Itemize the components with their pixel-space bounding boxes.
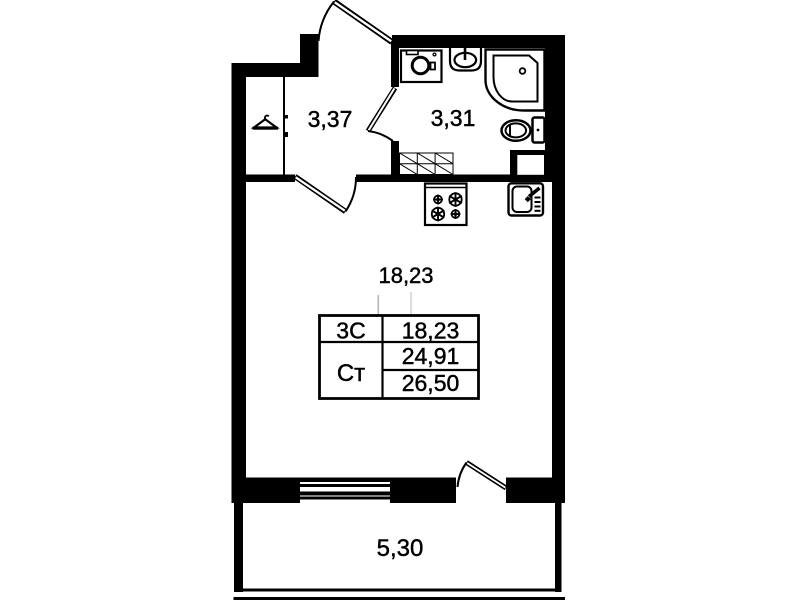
svg-text:3,37: 3,37 (308, 106, 353, 132)
svg-text:24,91: 24,91 (402, 343, 460, 369)
svg-text:Ст: Ст (337, 360, 365, 387)
svg-text:3,31: 3,31 (431, 105, 476, 131)
svg-text:18,23: 18,23 (402, 318, 460, 344)
svg-text:5,30: 5,30 (377, 535, 424, 562)
svg-text:26,50: 26,50 (402, 370, 460, 396)
svg-text:18,23: 18,23 (378, 263, 433, 288)
svg-text:3С: 3С (336, 318, 365, 344)
